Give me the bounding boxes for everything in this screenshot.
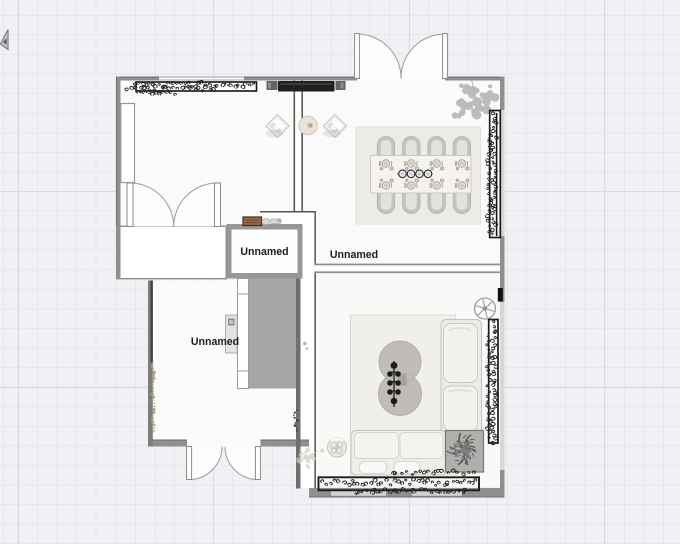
svg-text:Unnamed: Unnamed [330,249,378,261]
svg-text:Unnamed: Unnamed [191,336,239,348]
svg-text:Unnamed: Unnamed [240,246,288,258]
